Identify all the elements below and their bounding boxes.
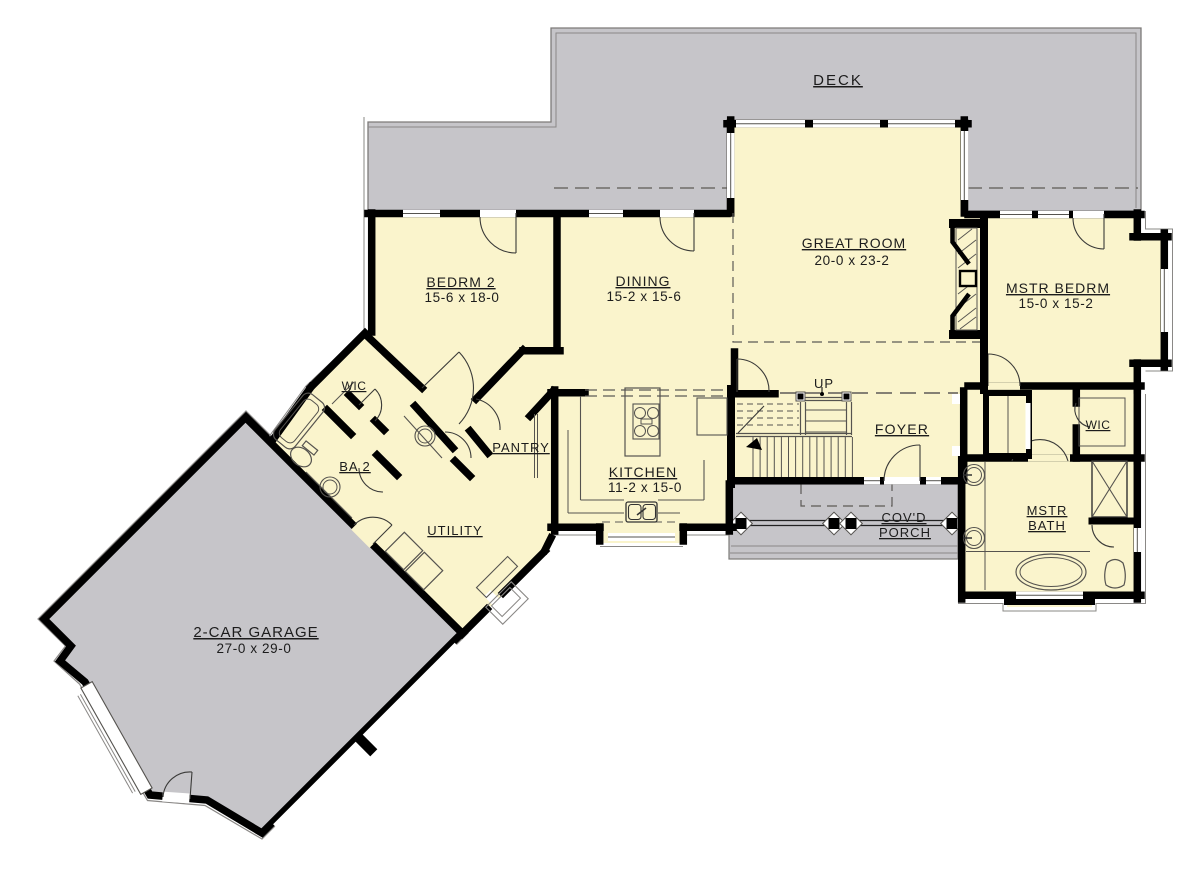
- svg-text:DINING: DINING: [616, 273, 671, 289]
- svg-text:2-CAR GARAGE: 2-CAR GARAGE: [193, 624, 318, 641]
- svg-text:PANTRY: PANTRY: [492, 440, 550, 455]
- svg-text:PORCH: PORCH: [879, 525, 931, 540]
- svg-text:UTILITY: UTILITY: [427, 523, 482, 538]
- svg-text:11-2 x 15-0: 11-2 x 15-0: [608, 480, 682, 495]
- svg-text:BA 2: BA 2: [339, 459, 370, 474]
- svg-text:15-6 x 18-0: 15-6 x 18-0: [425, 290, 500, 305]
- svg-text:15-0 x 15-2: 15-0 x 15-2: [1019, 296, 1094, 311]
- svg-text:WIC: WIC: [1086, 418, 1111, 432]
- svg-text:20-0 x 23-2: 20-0 x 23-2: [815, 253, 890, 268]
- svg-text:UP: UP: [814, 376, 834, 391]
- svg-text:BEDRM 2: BEDRM 2: [426, 274, 495, 290]
- svg-text:DECK: DECK: [813, 72, 863, 89]
- svg-text:MSTR: MSTR: [1027, 503, 1068, 518]
- svg-text:MSTR BEDRM: MSTR BEDRM: [1006, 280, 1110, 296]
- svg-text:FOYER: FOYER: [875, 421, 929, 437]
- svg-text:COV'D: COV'D: [881, 510, 926, 525]
- svg-text:GREAT ROOM: GREAT ROOM: [802, 235, 906, 251]
- svg-text:WIC: WIC: [342, 379, 367, 393]
- svg-text:27-0 x 29-0: 27-0 x 29-0: [217, 641, 292, 656]
- svg-text:BATH: BATH: [1028, 518, 1066, 533]
- svg-text:KITCHEN: KITCHEN: [609, 464, 677, 480]
- svg-text:15-2 x 15-6: 15-2 x 15-6: [607, 289, 682, 304]
